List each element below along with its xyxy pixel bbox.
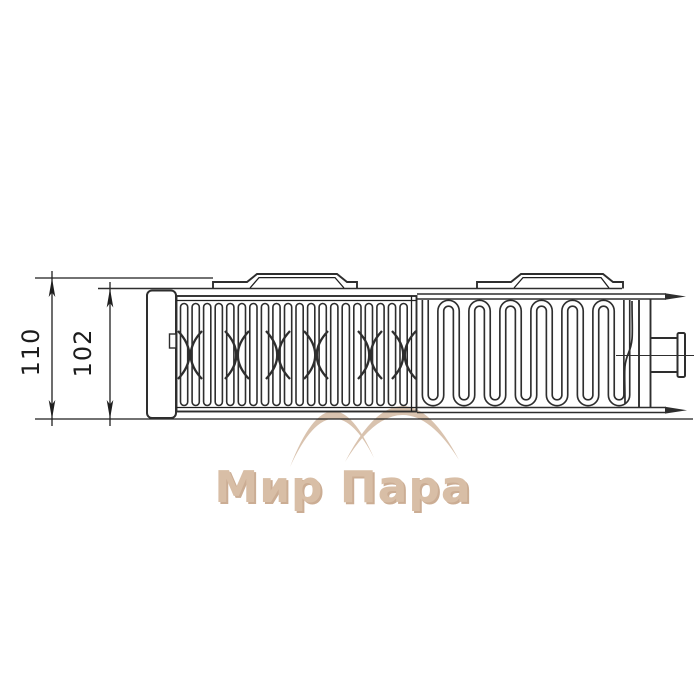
panel-lip-bottom	[665, 407, 687, 414]
dimension-label-102: 102	[69, 329, 97, 378]
panel-lip-top	[665, 293, 686, 299]
end-cap-clip	[170, 334, 177, 348]
top-bracket-2-inner	[514, 278, 609, 288]
watermark-arc-right	[345, 406, 459, 462]
radiator-body-group	[98, 274, 694, 418]
dimension-102-group: 102	[69, 282, 113, 426]
watermark-text: Мир Пара	[214, 462, 471, 513]
left-end-cap	[147, 291, 176, 419]
watermark-group: Мир Пара Мир Пара	[214, 406, 473, 515]
dimension-110-group: 110	[17, 271, 213, 426]
front-fin-section	[177, 296, 417, 412]
fin-profile-section	[417, 293, 687, 413]
fin-slots	[181, 304, 408, 406]
top-bracket-2	[477, 274, 623, 289]
fin-corrugation-core	[425, 300, 627, 403]
top-bracket-1	[213, 274, 357, 289]
dimension-label-110: 110	[17, 328, 45, 377]
fin-crossings	[178, 331, 416, 379]
top-bracket-1-inner	[250, 278, 344, 288]
radiator-technical-drawing: Мир Пара Мир Пара 110 102	[0, 0, 700, 700]
